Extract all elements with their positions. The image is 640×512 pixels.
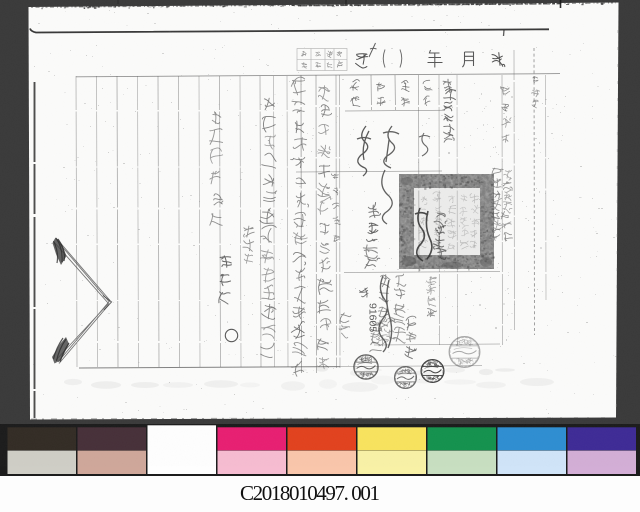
svg-text:C2018010497. 001: C2018010497. 001 [240,481,380,505]
